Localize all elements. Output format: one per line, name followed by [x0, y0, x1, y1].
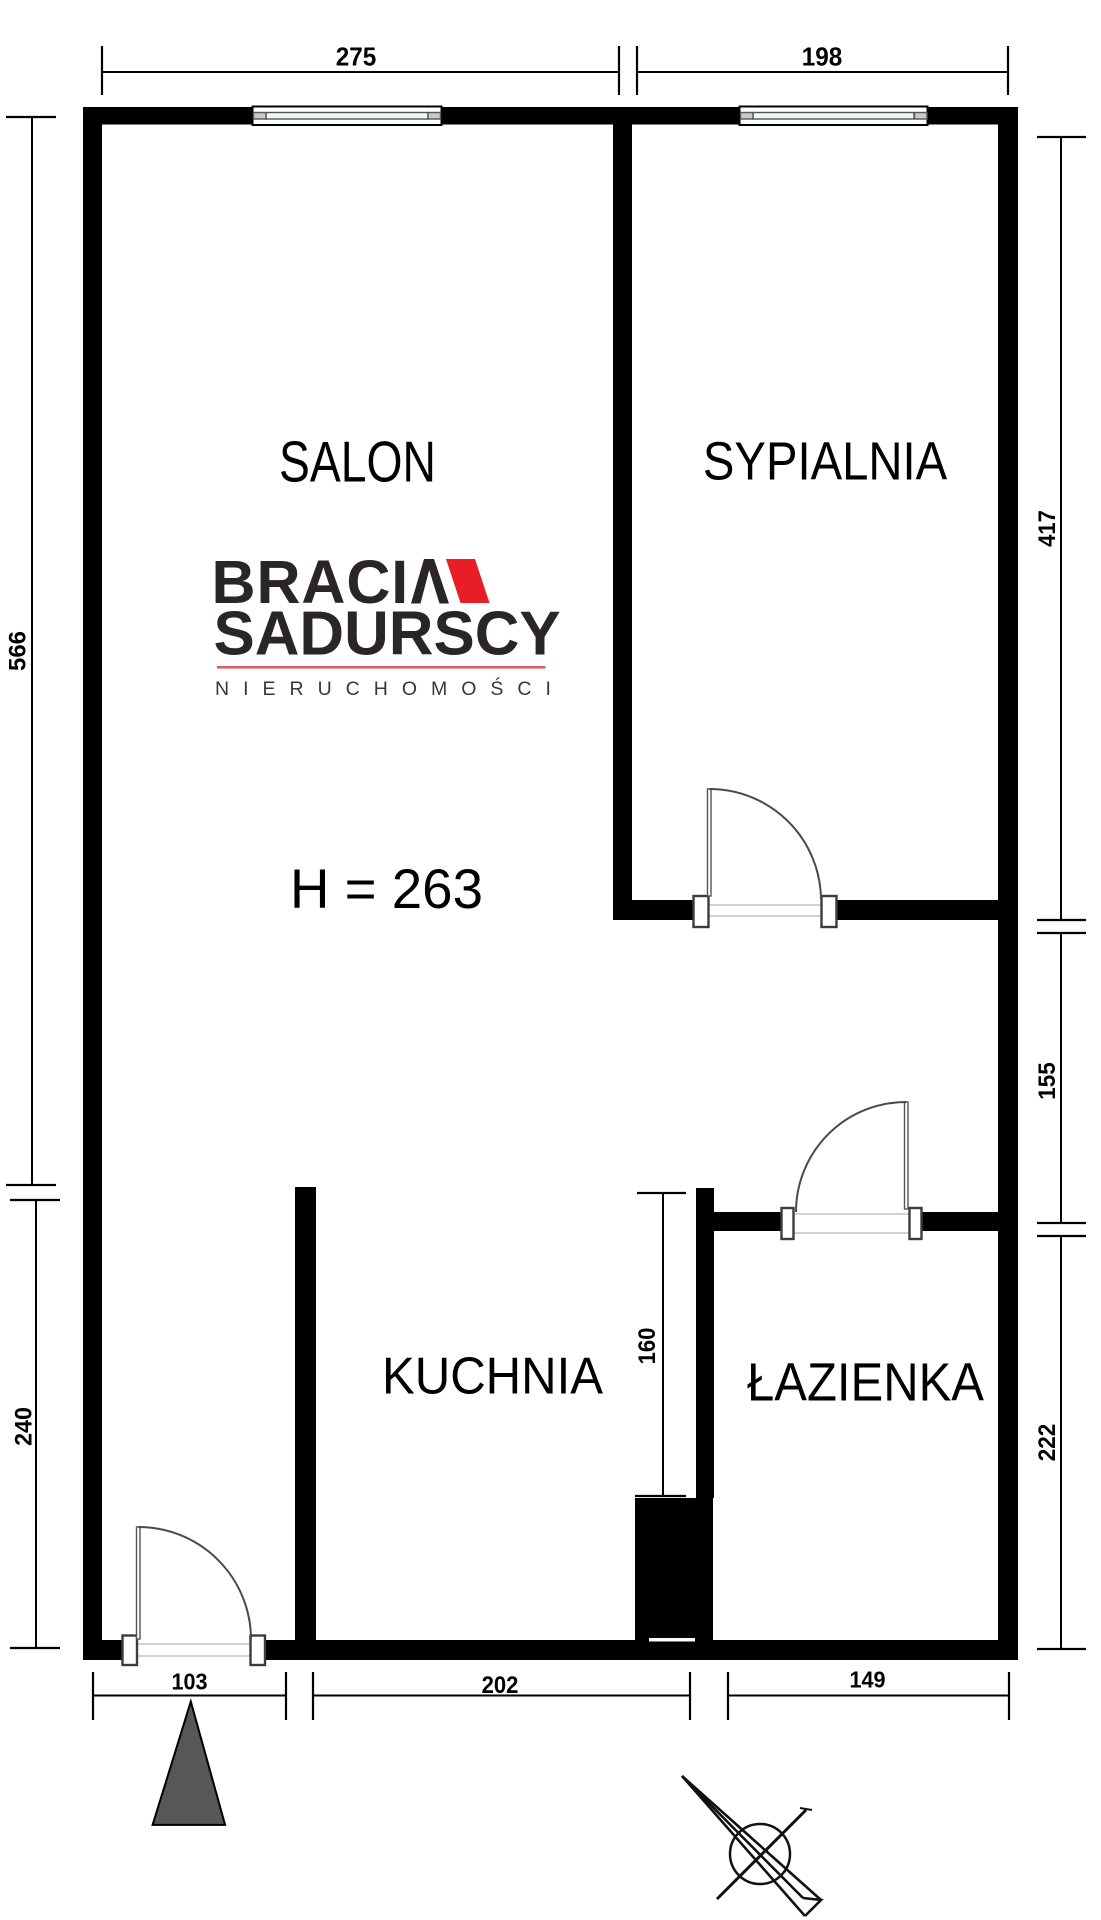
- svg-text:NIERUCHOMOŚCI: NIERUCHOMOŚCI: [215, 676, 565, 700]
- svg-text:SADURSCY: SADURSCY: [214, 599, 561, 668]
- svg-text:H = 263: H = 263: [290, 858, 483, 920]
- svg-text:ŁAZIENKA: ŁAZIENKA: [747, 1351, 985, 1412]
- svg-text:240: 240: [10, 1407, 38, 1446]
- svg-text:222: 222: [1033, 1424, 1060, 1462]
- svg-text:155: 155: [1033, 1062, 1060, 1100]
- svg-text:SYPIALNIA: SYPIALNIA: [703, 431, 947, 492]
- svg-text:SALON: SALON: [279, 431, 436, 495]
- svg-text:202: 202: [482, 1671, 519, 1698]
- svg-text:149: 149: [849, 1667, 885, 1693]
- svg-text:198: 198: [802, 43, 843, 72]
- svg-text:417: 417: [1033, 510, 1060, 547]
- svg-text:KUCHNIA: KUCHNIA: [382, 1346, 603, 1405]
- svg-text:275: 275: [336, 43, 377, 72]
- svg-text:103: 103: [171, 1669, 207, 1695]
- svg-text:566: 566: [4, 631, 31, 671]
- svg-text:160: 160: [633, 1328, 660, 1365]
